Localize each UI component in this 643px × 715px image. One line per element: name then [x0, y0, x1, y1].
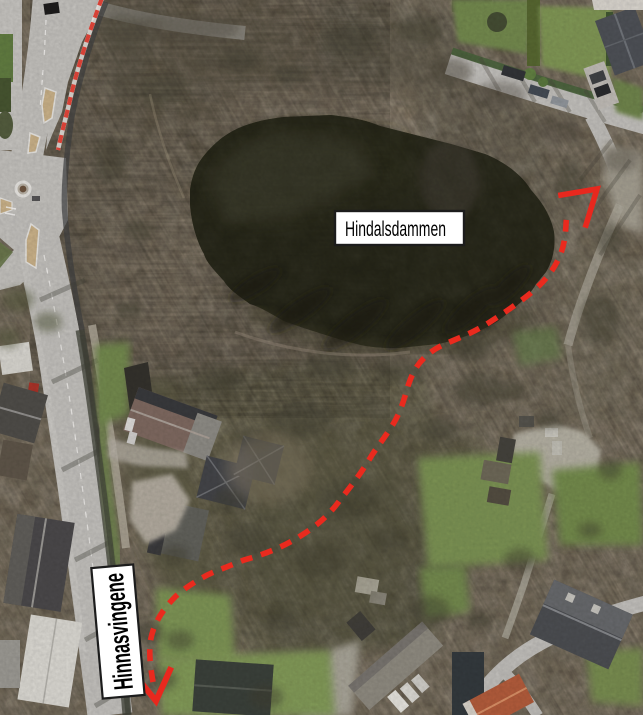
svg-text:Hindalsdammen: Hindalsdammen [345, 218, 446, 241]
